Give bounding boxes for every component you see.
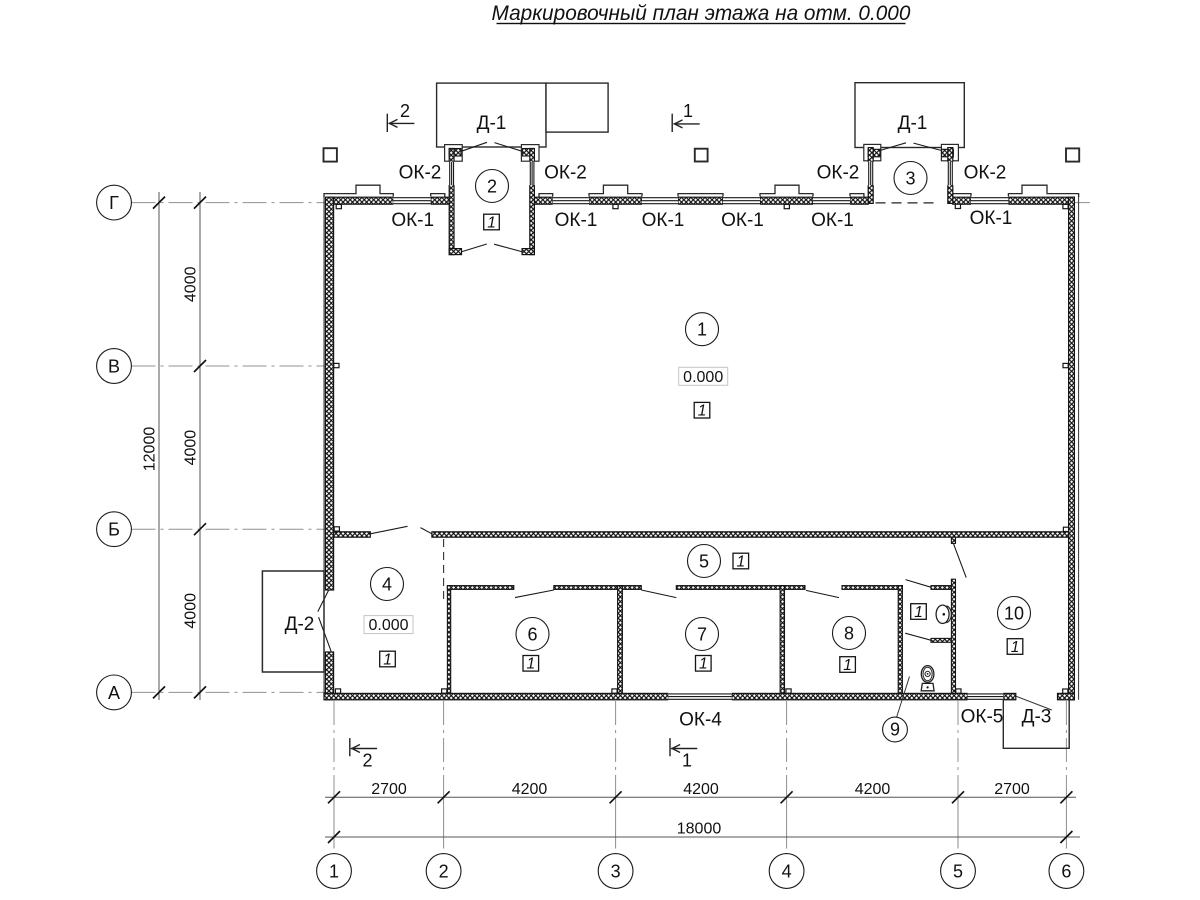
svg-text:ОК-2: ОК-2	[817, 162, 860, 183]
svg-text:1: 1	[699, 656, 708, 673]
svg-text:2: 2	[400, 101, 410, 121]
svg-text:1: 1	[383, 651, 392, 668]
svg-text:1: 1	[683, 101, 693, 121]
svg-text:ОК-1: ОК-1	[555, 210, 598, 231]
svg-text:4200: 4200	[855, 781, 891, 798]
svg-text:Г: Г	[109, 193, 119, 213]
svg-text:3: 3	[611, 861, 621, 881]
svg-text:1: 1	[329, 861, 339, 881]
svg-text:ОК-1: ОК-1	[642, 210, 685, 231]
svg-text:4000: 4000	[183, 430, 200, 466]
svg-text:1: 1	[1011, 639, 1020, 656]
svg-text:Б: Б	[108, 520, 120, 540]
svg-text:1: 1	[736, 553, 745, 570]
svg-text:2700: 2700	[994, 781, 1030, 798]
svg-text:5: 5	[953, 861, 963, 881]
svg-text:4200: 4200	[512, 781, 548, 798]
svg-text:2: 2	[362, 751, 372, 771]
svg-text:ОК-1: ОК-1	[811, 210, 854, 231]
svg-text:4: 4	[782, 861, 792, 881]
svg-text:4000: 4000	[183, 593, 200, 629]
svg-text:0.000: 0.000	[368, 617, 408, 634]
svg-text:8: 8	[844, 623, 854, 643]
svg-text:ОК-2: ОК-2	[964, 162, 1007, 183]
svg-text:5: 5	[699, 551, 709, 571]
svg-text:6: 6	[1061, 861, 1071, 881]
svg-text:В: В	[108, 356, 120, 376]
svg-text:Маркировочный план этажа на от: Маркировочный план этажа на отм. 0.000	[492, 2, 911, 25]
svg-text:ОК-4: ОК-4	[679, 710, 722, 731]
svg-text:1: 1	[843, 657, 852, 674]
svg-text:Д-2: Д-2	[285, 614, 315, 635]
svg-text:7: 7	[697, 624, 707, 644]
svg-text:1: 1	[914, 604, 923, 621]
svg-text:2: 2	[487, 176, 497, 196]
svg-text:12000: 12000	[142, 427, 159, 472]
svg-text:ОК-1: ОК-1	[721, 210, 764, 231]
svg-text:4000: 4000	[183, 266, 200, 302]
svg-text:1: 1	[682, 751, 692, 771]
svg-text:4200: 4200	[683, 781, 719, 798]
svg-text:ОК-2: ОК-2	[544, 162, 587, 183]
svg-text:2700: 2700	[371, 781, 407, 798]
svg-text:Д-1: Д-1	[898, 113, 928, 134]
svg-text:ОК-1: ОК-1	[391, 210, 434, 231]
svg-text:3: 3	[905, 168, 915, 188]
svg-text:ОК-5: ОК-5	[961, 707, 1004, 728]
svg-text:18000: 18000	[677, 820, 722, 837]
svg-text:1: 1	[526, 656, 535, 673]
svg-text:ОК-1: ОК-1	[970, 208, 1013, 229]
svg-text:А: А	[108, 683, 120, 703]
svg-text:Д-1: Д-1	[477, 113, 507, 134]
svg-text:2: 2	[439, 861, 449, 881]
svg-text:1: 1	[697, 320, 707, 340]
svg-text:1: 1	[487, 214, 496, 231]
svg-text:Д-3: Д-3	[1022, 707, 1052, 728]
svg-text:6: 6	[527, 624, 537, 644]
svg-text:10: 10	[1004, 603, 1024, 623]
svg-text:0.000: 0.000	[683, 369, 723, 386]
svg-text:9: 9	[890, 720, 900, 740]
svg-text:4: 4	[382, 574, 392, 594]
svg-text:1: 1	[698, 403, 707, 420]
svg-text:ОК-2: ОК-2	[399, 162, 442, 183]
